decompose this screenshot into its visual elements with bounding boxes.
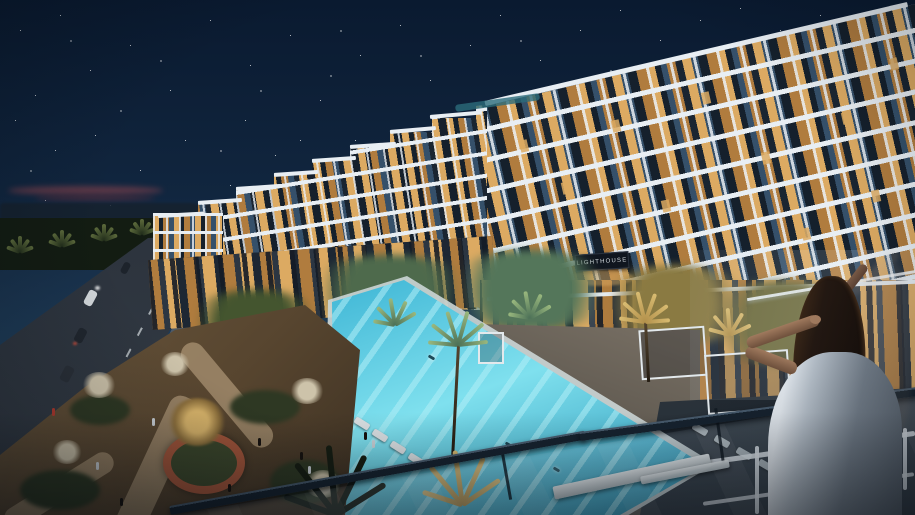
pedestrian: [258, 438, 261, 446]
pedestrian: [364, 432, 367, 440]
car-headlight: [95, 286, 100, 290]
hedge: [230, 390, 300, 424]
dusk-cloud: [8, 186, 163, 195]
pedestrian: [96, 462, 99, 470]
woman-hand: [810, 315, 821, 324]
pedestrian: [228, 484, 231, 492]
stars-bright: [0, 0, 2, 2]
dusk-cloud: [35, 195, 155, 201]
hedge: [70, 395, 130, 425]
flowering-bush: [160, 352, 190, 376]
pedestrian: [308, 466, 311, 474]
pedestrian: [300, 452, 303, 460]
night-resort-rendering: LIGHTHOUSE: [0, 0, 915, 515]
flowering-bush: [290, 378, 324, 404]
plaza-tree: [168, 398, 226, 446]
pedestrian: [152, 418, 155, 426]
pedestrian: [120, 498, 123, 506]
flowering-bush: [82, 372, 116, 398]
woman-dress: [768, 352, 902, 515]
cyclist: [52, 408, 55, 416]
hedge: [20, 470, 100, 510]
flowering-bush: [52, 440, 82, 464]
pedestrian: [372, 440, 375, 448]
car-taillight: [73, 342, 77, 345]
pool-cabana: [478, 332, 504, 364]
